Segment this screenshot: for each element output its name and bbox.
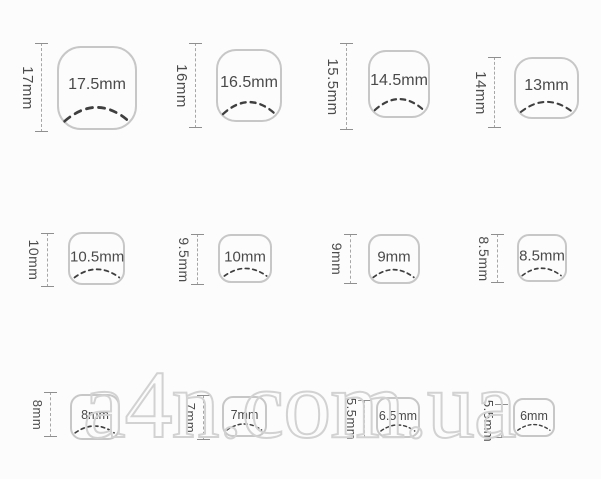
nail-shape-r1-c3: 14.5mm <box>368 50 430 118</box>
smile-line-icon <box>516 417 552 432</box>
height-measure-r1-c1: 17mm <box>41 43 42 132</box>
height-label: 8.5mm <box>476 236 492 281</box>
nail-shape-r3-c3: 6.5mm <box>376 397 420 438</box>
smile-line-icon <box>371 260 416 279</box>
height-measure-r3-c4: 5.5mm <box>501 404 502 438</box>
nail-shape-r2-c4: 8.5mm <box>517 234 567 282</box>
nail-shape-r3-c4: 6mm <box>513 398 555 437</box>
watermark-text: a4n.com.ua <box>83 357 516 453</box>
smile-line-icon <box>72 259 122 280</box>
smile-line-icon <box>61 91 132 125</box>
nail-shape-r1-c2: 16.5mm <box>216 49 282 122</box>
nail-shape-r1-c1: 17.5mm <box>57 46 137 130</box>
height-measure-r3-c1: 8mm <box>50 392 51 437</box>
nail-size-chart: 17mm 17.5mm 16mm 16.5mm 15.5mm 14.5mm 14… <box>0 0 601 479</box>
height-measure-r2-c2: 9.5mm <box>197 234 198 285</box>
height-measure-r3-c2: 7mm <box>203 395 204 440</box>
smile-line-icon <box>73 417 116 435</box>
height-label: 15.5mm <box>324 58 341 115</box>
height-label: 9mm <box>329 243 345 276</box>
height-measure-r1-c2: 16mm <box>195 43 196 128</box>
height-measure-r2-c3: 9mm <box>350 234 351 284</box>
height-measure-r1-c3: 15.5mm <box>346 43 347 130</box>
nail-shape-r2-c3: 9mm <box>368 234 420 284</box>
height-label: 16mm <box>173 64 190 108</box>
height-label: 10mm <box>26 240 42 281</box>
height-measure-r3-c3: 5.5mm <box>364 400 365 438</box>
smile-line-icon <box>372 86 427 113</box>
height-label: 8mm <box>30 399 45 429</box>
height-label: 9.5mm <box>176 237 192 282</box>
smile-line-icon <box>518 90 575 114</box>
smile-line-icon <box>222 259 269 278</box>
height-measure-r2-c4: 8.5mm <box>497 234 498 283</box>
smile-line-icon <box>520 259 563 277</box>
nail-shape-r3-c1: 8mm <box>70 394 120 440</box>
height-label: 5.5mm <box>481 400 496 442</box>
nail-shape-r2-c1: 10.5mm <box>68 232 125 285</box>
nail-shape-r3-c2: 7mm <box>222 396 267 437</box>
height-label: 14mm <box>472 71 489 115</box>
height-label: 5.5mm <box>344 398 359 440</box>
nail-shape-r1-c4: 13mm <box>514 57 579 119</box>
smile-line-icon <box>379 417 417 433</box>
height-measure-r2-c1: 10mm <box>47 233 48 287</box>
height-label: 7mm <box>183 402 198 432</box>
height-label: 17mm <box>19 66 36 110</box>
nail-shape-r2-c2: 10mm <box>218 234 272 283</box>
height-measure-r1-c4: 14mm <box>494 57 495 128</box>
smile-line-icon <box>220 88 278 117</box>
smile-line-icon <box>225 416 264 432</box>
